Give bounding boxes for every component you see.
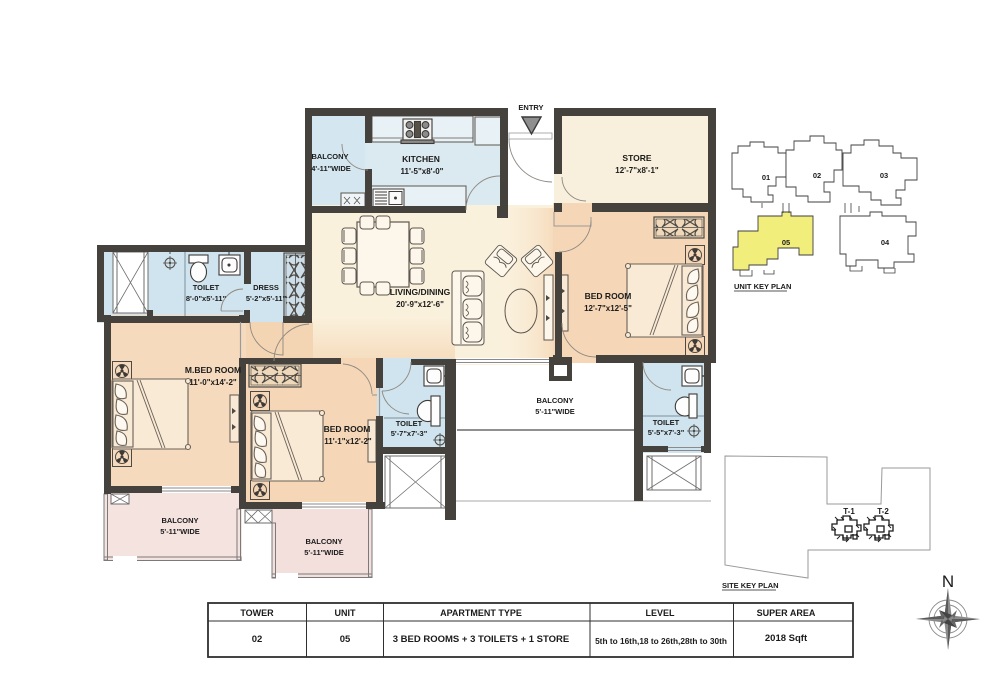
svg-text:5'-11"WIDE: 5'-11"WIDE [160, 527, 200, 536]
svg-text:M.BED ROOM: M.BED ROOM [185, 365, 241, 375]
svg-text:4'-11"WIDE: 4'-11"WIDE [311, 164, 351, 173]
svg-text:05: 05 [340, 634, 351, 645]
svg-text:DRESS: DRESS [253, 283, 279, 292]
svg-text:5'-7"x7'-3": 5'-7"x7'-3" [391, 429, 428, 438]
svg-text:12'-7"x12'-5": 12'-7"x12'-5" [584, 304, 632, 313]
svg-text:BED ROOM: BED ROOM [324, 424, 371, 434]
svg-text:SITE KEY PLAN: SITE KEY PLAN [722, 581, 779, 590]
svg-text:11'-0"x14'-2": 11'-0"x14'-2" [189, 378, 237, 387]
svg-text:5'-11"WIDE: 5'-11"WIDE [535, 407, 575, 416]
svg-text:02: 02 [252, 634, 263, 645]
svg-text:BALCONY: BALCONY [305, 537, 342, 546]
svg-text:05: 05 [782, 238, 790, 247]
svg-text:01: 01 [762, 173, 770, 182]
svg-text:02: 02 [813, 171, 821, 180]
svg-text:8'-0"x5'-11": 8'-0"x5'-11" [186, 294, 227, 303]
svg-text:2018 Sqft: 2018 Sqft [765, 633, 808, 644]
svg-text:BALCONY: BALCONY [311, 152, 348, 161]
svg-text:5th to 16th,18 to 26th,28th to: 5th to 16th,18 to 26th,28th to 30th [595, 636, 727, 646]
svg-text:TOILET: TOILET [193, 283, 220, 292]
svg-text:UNIT: UNIT [335, 608, 356, 618]
svg-text:20'-9"x12'-6": 20'-9"x12'-6" [396, 300, 444, 309]
svg-text:12'-7"x8'-1": 12'-7"x8'-1" [615, 166, 659, 175]
svg-text:KITCHEN: KITCHEN [402, 154, 440, 164]
svg-text:BALCONY: BALCONY [161, 516, 198, 525]
svg-text:3 BED ROOMS + 3 TOILETS + 1 ST: 3 BED ROOMS + 3 TOILETS + 1 STORE [393, 634, 570, 645]
svg-text:TOILET: TOILET [653, 418, 680, 427]
svg-text:T-2: T-2 [877, 507, 889, 516]
svg-text:5'-2"x5'-11": 5'-2"x5'-11" [246, 294, 287, 303]
svg-text:BED ROOM: BED ROOM [585, 291, 632, 301]
svg-text:5'-11"WIDE: 5'-11"WIDE [304, 548, 344, 557]
svg-text:ENTRY: ENTRY [518, 103, 543, 112]
svg-text:LIVING/DINING: LIVING/DINING [390, 287, 451, 297]
svg-text:UNIT KEY PLAN: UNIT KEY PLAN [734, 282, 791, 291]
svg-text:BALCONY: BALCONY [536, 396, 573, 405]
svg-text:SUPER AREA: SUPER AREA [757, 608, 816, 618]
svg-text:LEVEL: LEVEL [645, 608, 675, 618]
svg-text:11'-5"x8'-0": 11'-5"x8'-0" [401, 167, 444, 176]
svg-text:11'-1"x12'-2": 11'-1"x12'-2" [324, 437, 372, 446]
svg-text:T-1: T-1 [843, 507, 855, 516]
svg-text:5'-5"x7'-3": 5'-5"x7'-3" [648, 428, 685, 437]
svg-text:APARTMENT TYPE: APARTMENT TYPE [440, 608, 522, 618]
svg-text:04: 04 [881, 238, 890, 247]
svg-text:03: 03 [880, 171, 888, 180]
svg-text:STORE: STORE [622, 153, 651, 163]
svg-text:TOWER: TOWER [240, 608, 274, 618]
svg-text:TOILET: TOILET [396, 419, 423, 428]
